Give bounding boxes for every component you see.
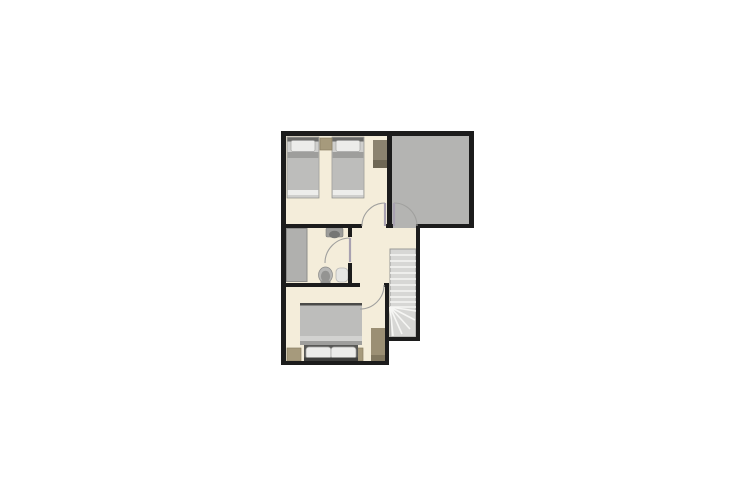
bed-pillow <box>291 141 315 152</box>
bed-foot-sheet <box>288 190 319 195</box>
gray-open-area-floor <box>392 136 469 224</box>
floor-plan <box>281 131 474 365</box>
single-bed-right <box>332 137 364 198</box>
bed-blanket-fold <box>288 152 319 158</box>
bed-blanket-fold <box>333 152 364 158</box>
wall-right-gray-area <box>469 131 474 228</box>
bed-blanket-fold-light <box>300 336 362 341</box>
page-canvas <box>0 0 755 504</box>
washbasin <box>326 228 343 238</box>
double-bedroom-nightstand-left <box>287 348 301 361</box>
wall-bedroom-bottom <box>281 361 389 365</box>
wall-stairwell-bottom <box>385 337 420 341</box>
wall-top <box>281 131 474 136</box>
bed-blanket <box>333 152 364 193</box>
bathroom-white-fixture <box>336 268 348 282</box>
bed-pillow-right <box>331 347 356 359</box>
wall-mid-horizontal-stub <box>386 224 393 228</box>
single-bed-left <box>287 137 319 198</box>
wall-bedroom-top-left <box>281 283 360 287</box>
staircase <box>390 249 416 337</box>
bed-blanket-fold <box>300 341 362 345</box>
bed-headboard <box>304 358 358 362</box>
double-bedroom-wardrobe <box>371 328 385 361</box>
wall-bedroom-top-stub <box>384 283 389 287</box>
wall-bedroom-right <box>385 283 389 365</box>
bed-blanket <box>300 306 362 337</box>
wall-gray-area-bottom <box>416 224 474 228</box>
bed-blanket <box>288 152 319 193</box>
wall-mid-horizontal-left <box>281 224 362 228</box>
wall-twin-gray-divider <box>387 131 392 224</box>
twin-bedroom-nightstand <box>320 138 332 150</box>
wall-left <box>281 131 286 365</box>
wall-bathroom-right-upper <box>348 228 352 237</box>
double-bedroom-door-threshold <box>360 283 384 287</box>
wall-stairwell-right <box>416 228 420 341</box>
shower <box>287 229 308 282</box>
gray-area-door-threshold <box>393 224 416 228</box>
toilet <box>319 267 333 283</box>
twin-bedroom-wardrobe <box>373 140 387 168</box>
double-bed <box>300 303 362 361</box>
bed-foot-frame <box>300 303 362 306</box>
wall-bathroom-right-lower <box>348 263 352 283</box>
bed-foot-sheet <box>333 190 364 195</box>
bed-pillow <box>336 141 360 152</box>
bed-pillow-left <box>306 347 331 359</box>
twin-bedroom-door-threshold <box>362 224 386 228</box>
